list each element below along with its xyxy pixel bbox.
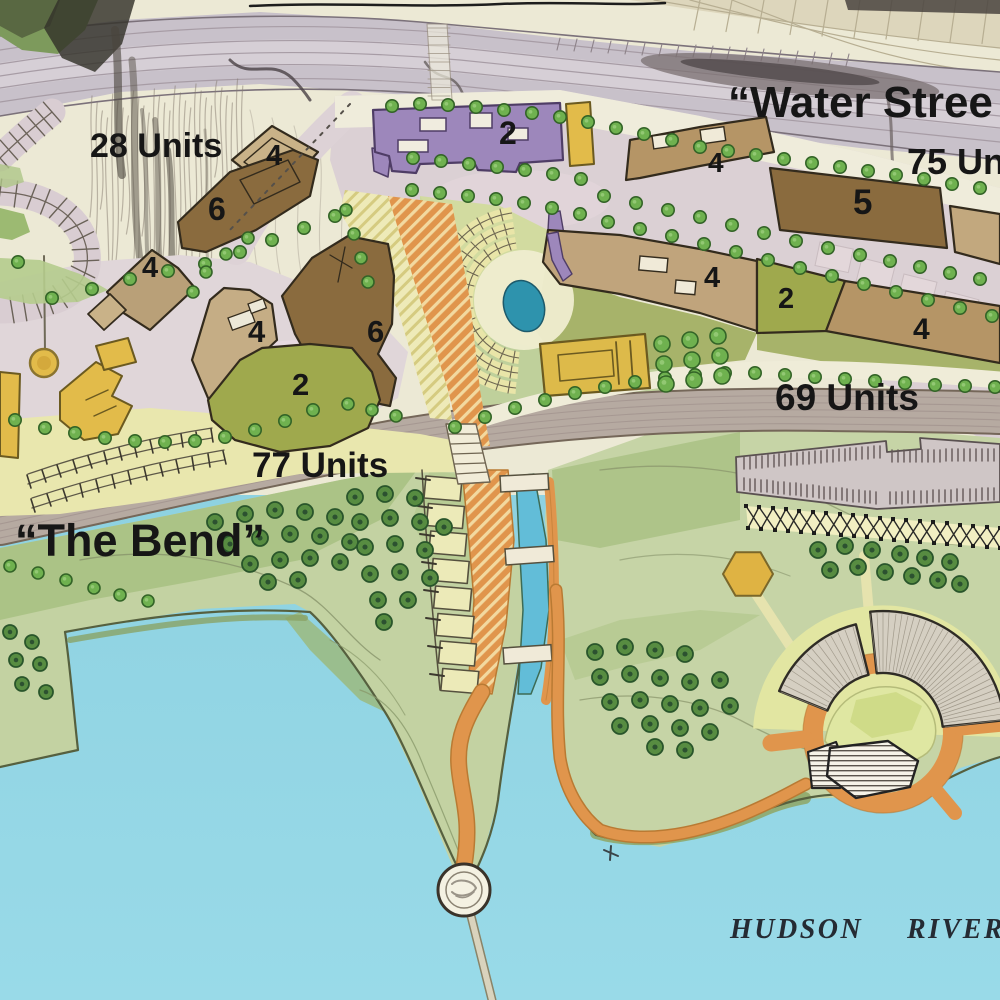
svg-text:“Water Stree: “Water Stree	[728, 78, 993, 127]
svg-text:4: 4	[704, 262, 720, 294]
svg-text:4: 4	[248, 314, 266, 349]
svg-text:2: 2	[292, 367, 309, 402]
svg-text:77 Units: 77 Units	[252, 446, 388, 485]
svg-text:2: 2	[499, 115, 517, 151]
svg-text:69 Units: 69 Units	[775, 377, 919, 418]
svg-text:HUDSON: HUDSON	[729, 914, 863, 945]
svg-text:6: 6	[208, 191, 226, 227]
svg-text:6: 6	[367, 314, 384, 349]
svg-text:4: 4	[142, 252, 158, 284]
svg-text:28 Units: 28 Units	[90, 127, 222, 165]
svg-text:4: 4	[913, 313, 930, 346]
svg-text:“The Bend”: “The Bend”	[15, 515, 265, 566]
svg-text:5: 5	[853, 183, 872, 222]
svg-text:2: 2	[778, 283, 794, 315]
svg-text:75 Un: 75 Un	[907, 141, 1000, 182]
svg-text:RIVER: RIVER	[906, 914, 1000, 945]
svg-text:4: 4	[708, 147, 724, 178]
svg-text:4: 4	[266, 140, 282, 172]
